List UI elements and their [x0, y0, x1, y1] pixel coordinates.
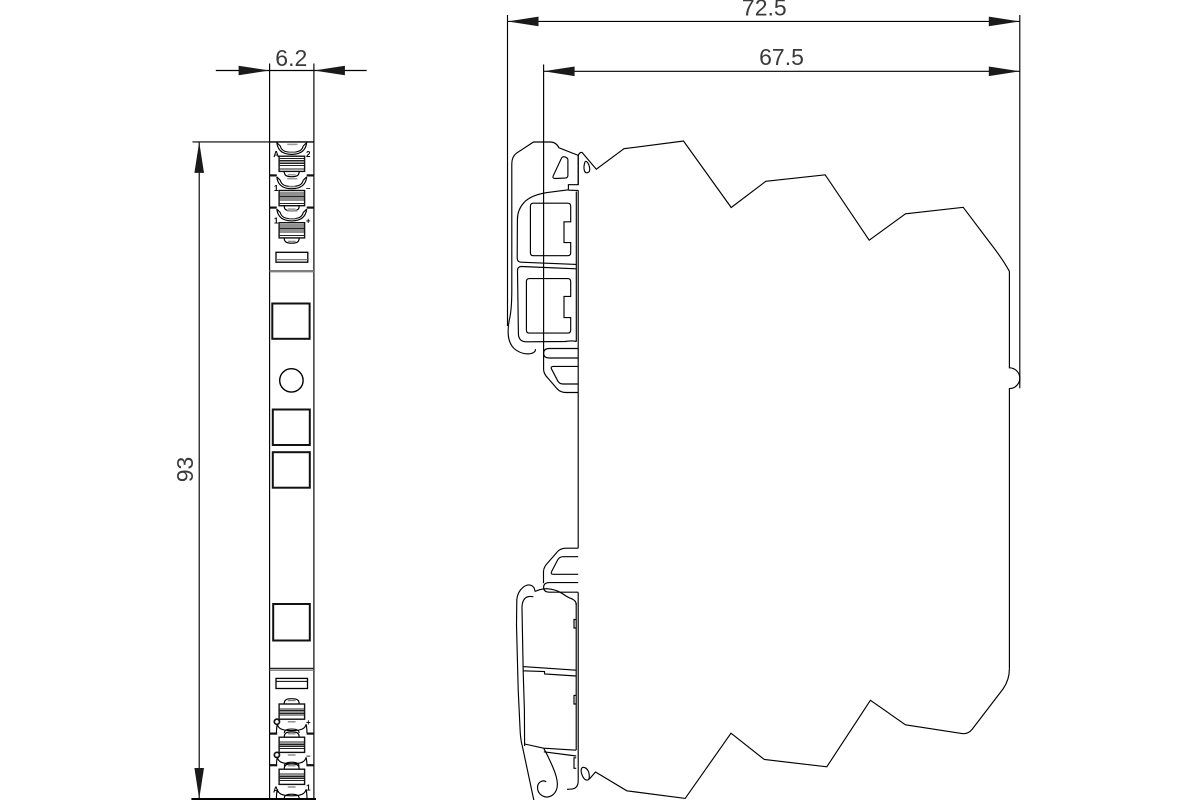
svg-text:6.2: 6.2 [275, 45, 307, 71]
svg-text:1: 1 [274, 216, 279, 225]
svg-text:1: 1 [274, 184, 279, 193]
svg-text:93: 93 [172, 457, 198, 483]
svg-text:A: A [273, 785, 279, 794]
svg-text:72.5: 72.5 [742, 0, 787, 21]
svg-text:2: 2 [306, 150, 311, 159]
svg-text:A: A [273, 150, 279, 159]
svg-text:–: – [306, 184, 311, 193]
svg-text:67.5: 67.5 [759, 44, 804, 70]
svg-text:+: + [306, 216, 311, 225]
